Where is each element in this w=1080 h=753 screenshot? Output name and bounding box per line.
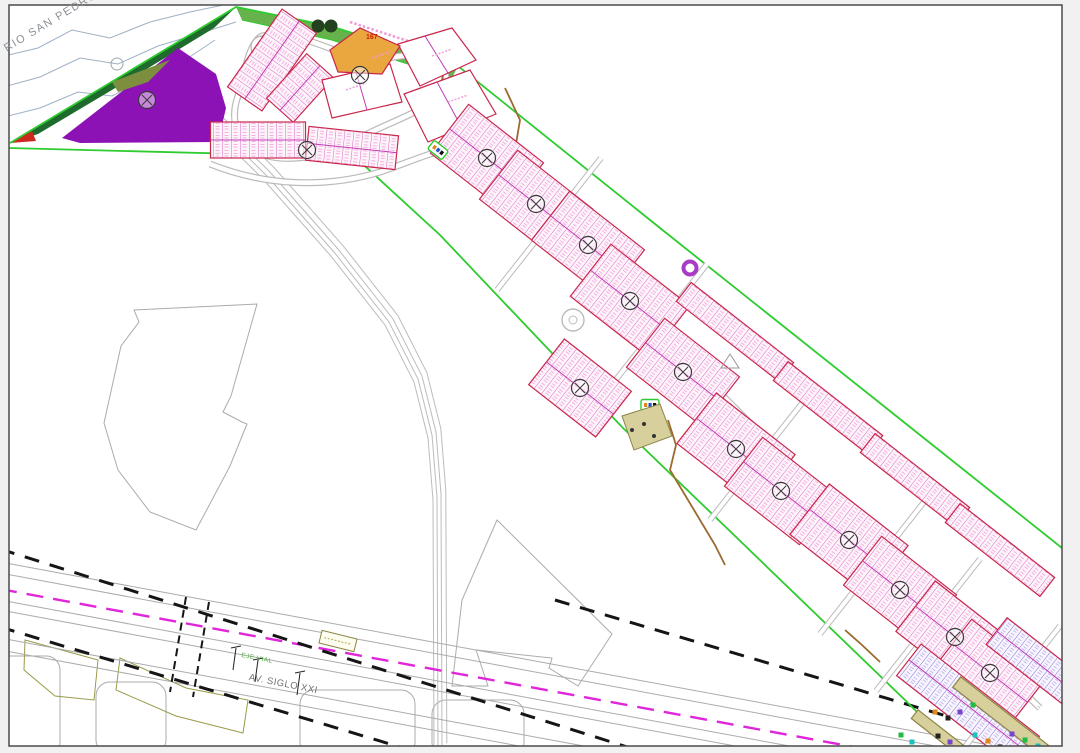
lot-block — [211, 122, 306, 158]
landscape-mark-icon — [971, 703, 976, 708]
block-number-marker — [352, 67, 369, 84]
landscape-mark-icon — [1010, 732, 1015, 737]
landscape-mark-icon — [946, 716, 951, 721]
block-number-marker — [139, 92, 156, 109]
block-number-marker — [947, 629, 964, 646]
tree-icon — [312, 20, 325, 33]
tree-icon — [325, 20, 338, 33]
landscape-mark-icon — [933, 710, 938, 715]
landscape-mark-icon — [910, 740, 915, 745]
landscape-mark-icon — [899, 733, 904, 738]
block-number-marker — [572, 380, 589, 397]
landscape-mark-icon — [1023, 738, 1028, 743]
site-plan-page: RIO SAN PEDRO AV. SIGLO XXI EJE VIAL 167 — [0, 0, 1080, 753]
block-number-marker — [622, 293, 639, 310]
playground-icon — [652, 434, 656, 438]
block-number-marker — [841, 532, 858, 549]
landscape-mark-icon — [986, 739, 991, 744]
block-number-marker — [892, 582, 909, 599]
block-number-marker — [728, 441, 745, 458]
block-number-marker — [675, 364, 692, 381]
block-number-marker — [580, 237, 597, 254]
block-number-marker — [982, 665, 999, 682]
site-plan-drawing — [0, 0, 1080, 753]
block-number-marker — [299, 142, 316, 159]
landscape-mark-icon — [973, 733, 978, 738]
block-number-marker — [479, 150, 496, 167]
landscape-mark-icon — [958, 710, 963, 715]
cul-de-sac — [562, 309, 584, 331]
block-number-marker — [528, 196, 545, 213]
block-number-marker — [773, 483, 790, 500]
playground-icon — [630, 428, 634, 432]
playground-icon — [642, 422, 646, 426]
landscape-mark-icon — [948, 740, 953, 745]
landscape-mark-icon — [936, 734, 941, 739]
drawing-layers — [0, 4, 1080, 753]
